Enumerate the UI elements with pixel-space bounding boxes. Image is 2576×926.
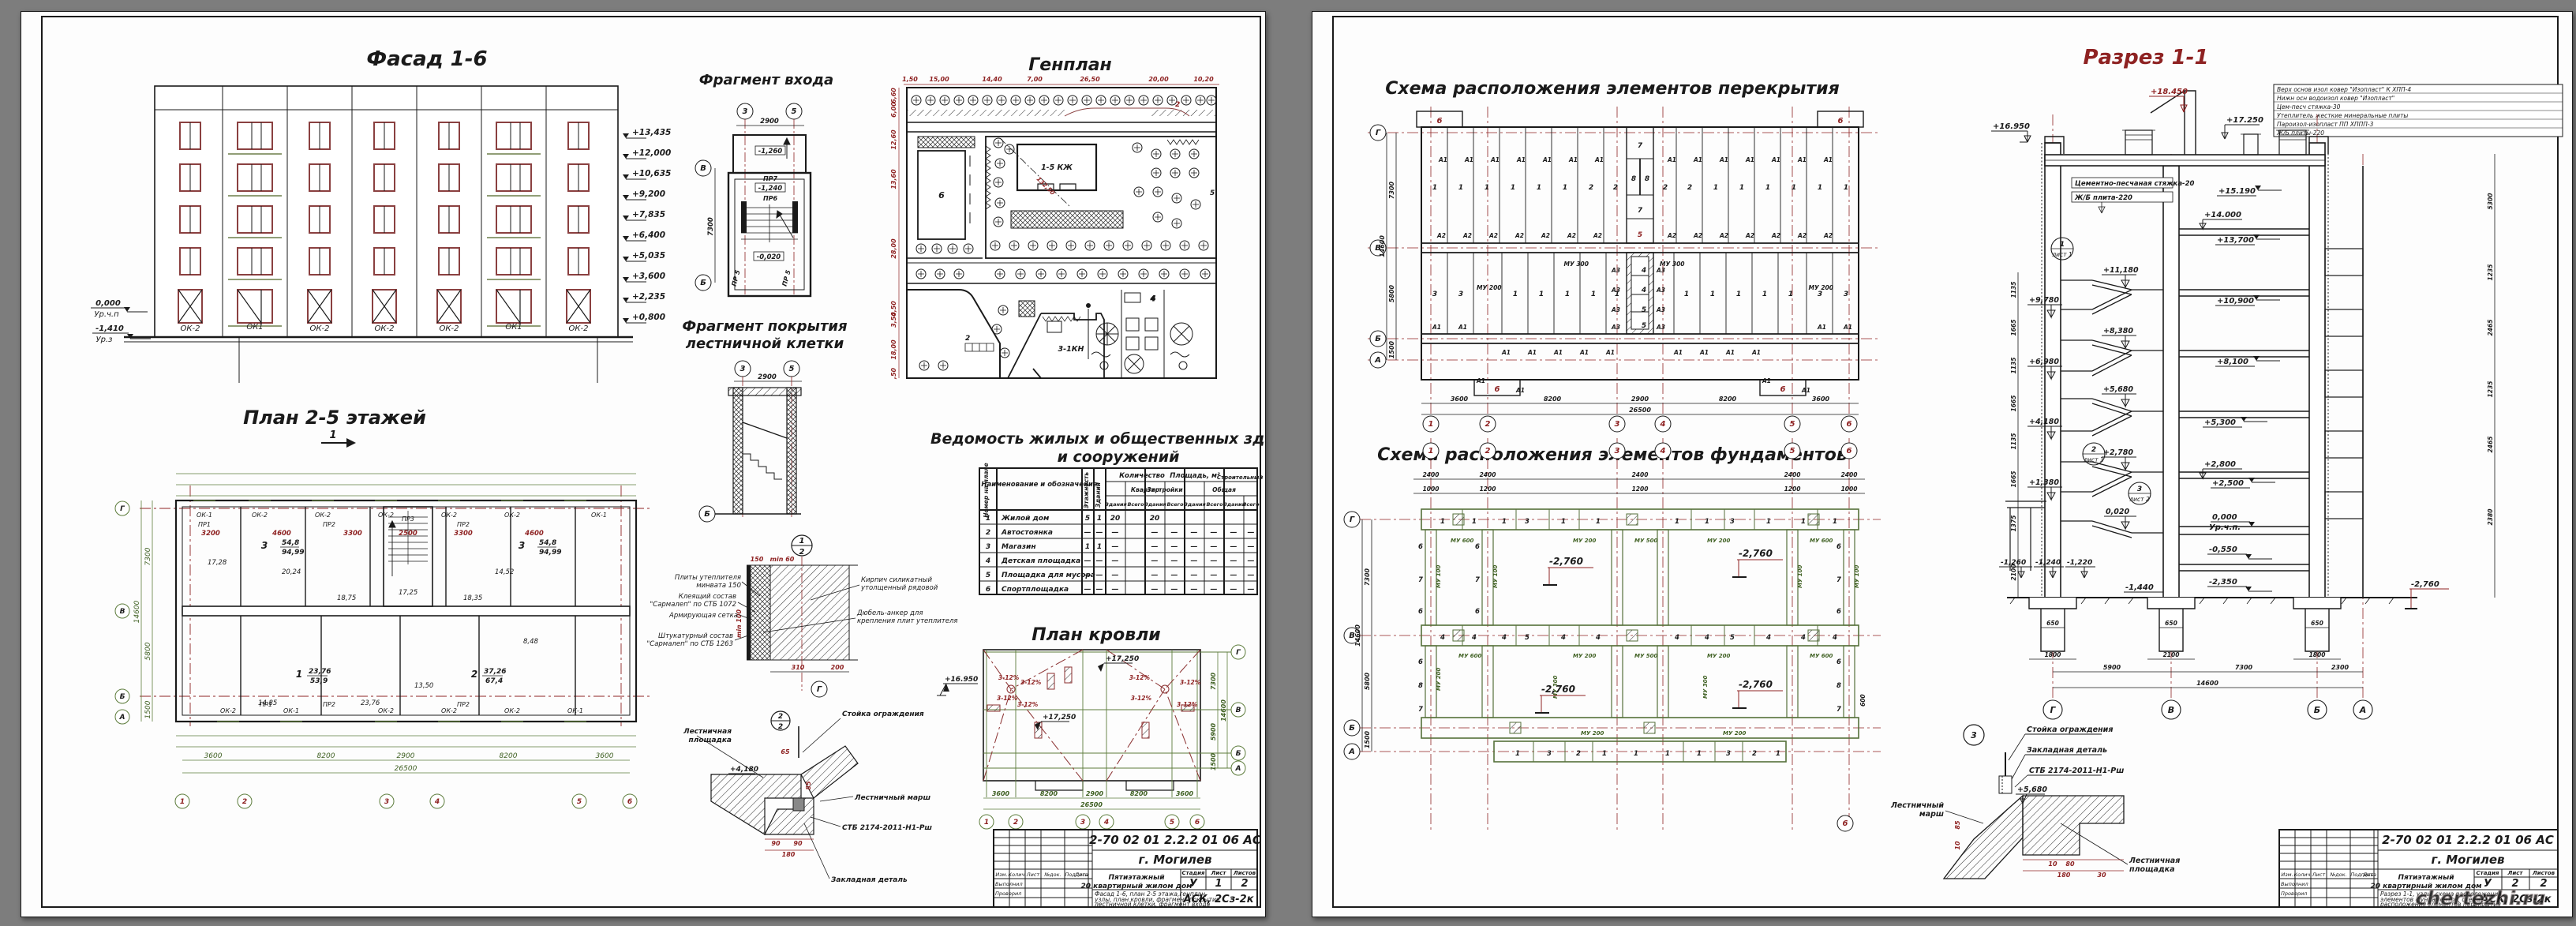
svg-text:-1,240: -1,240 [758, 185, 782, 193]
svg-text:+5,680: +5,680 [2103, 385, 2133, 394]
svg-text:Изм.: Изм. [995, 872, 1007, 878]
svg-text:13,50: 13,50 [414, 682, 433, 690]
svg-text:—: — [1211, 529, 1218, 537]
svg-text:14600: 14600 [1220, 699, 1227, 722]
svg-text:0,020: 0,020 [2106, 508, 2129, 516]
svg-text:5900: 5900 [1210, 722, 1217, 740]
svg-text:2: 2 [1576, 750, 1581, 758]
buildings-register-table: Ведомость жилых и общественных зданий и … [930, 430, 1265, 594]
svg-text:—: — [1084, 572, 1091, 579]
svg-text:ПР1: ПР1 [198, 521, 211, 528]
svg-text:2380: 2380 [2487, 509, 2494, 526]
svg-text:5: 5 [1730, 634, 1735, 642]
svg-text:+14.000: +14.000 [2204, 211, 2241, 219]
svg-text:5: 5 [1525, 634, 1529, 642]
svg-text:—: — [1248, 543, 1255, 551]
svg-text:1500: 1500 [1388, 340, 1395, 358]
svg-text:+15.190: +15.190 [2218, 187, 2256, 196]
svg-text:Здания: Здания [1184, 501, 1205, 508]
stair-roof-dim: 2900 [758, 373, 777, 381]
svg-text:4: 4 [1674, 634, 1679, 642]
svg-text:А1: А1 [1542, 156, 1552, 163]
svg-text:МУ 200: МУ 200 [1707, 653, 1731, 659]
svg-text:20: 20 [1150, 515, 1160, 523]
svg-text:7: 7 [1418, 706, 1423, 714]
svg-text:А1: А1 [1801, 387, 1810, 394]
svg-text:—: — [1230, 557, 1237, 565]
svg-text:2400: 2400 [1841, 471, 1858, 478]
svg-text:5800: 5800 [144, 642, 152, 660]
svg-text:1: 1 [1739, 184, 1744, 192]
svg-text:А2: А2 [1488, 232, 1498, 239]
svg-text:1: 1 [1684, 291, 1689, 298]
genplan-road-label: 2 [1175, 101, 1180, 109]
svg-text:65: 65 [781, 748, 790, 755]
svg-text:18,75: 18,75 [337, 594, 356, 602]
svg-text:8200: 8200 [500, 752, 518, 760]
svg-text:—: — [1211, 572, 1218, 579]
svg-text:+11,180: +11,180 [2103, 266, 2139, 275]
svg-text:1: 1 [986, 515, 990, 523]
svg-text:2900: 2900 [397, 752, 415, 760]
floor-plan: План 2-5 этажей 1 [115, 407, 653, 808]
svg-text:Количество: Количество [1119, 472, 1165, 480]
facade-title: Фасад 1-6 [366, 47, 487, 71]
svg-text:10,20: 10,20 [1193, 76, 1214, 83]
svg-text:+5,680: +5,680 [2017, 785, 2047, 794]
svg-text:А1: А1 [1438, 156, 1447, 163]
svg-text:6: 6 [1847, 447, 1852, 456]
svg-text:10: 10 [1954, 841, 1961, 850]
svg-text:Г: Г [2050, 705, 2056, 715]
svg-text:1: 1 [1765, 184, 1770, 192]
svg-text:26500: 26500 [395, 765, 417, 773]
section-left-chain: 1135 1665 1135 1665 1135 1665 1375 2100 [2010, 272, 2018, 598]
svg-text:4600: 4600 [271, 530, 291, 538]
svg-text:7: 7 [1638, 142, 1643, 150]
svg-text:МУ 200: МУ 200 [1573, 538, 1597, 544]
svg-text:6: 6 [1843, 819, 1848, 828]
svg-text:Зданий: Зданий [1095, 482, 1102, 508]
svg-text:Б: Б [120, 693, 125, 701]
svg-text:ОК-2: ОК-2 [441, 512, 457, 519]
svg-text:14600: 14600 [2196, 680, 2218, 687]
svg-text:1: 1 [1596, 518, 1601, 526]
svg-text:ОК-2: ОК-2 [252, 512, 268, 519]
svg-text:1,50: 1,50 [902, 76, 918, 83]
svg-text:6: 6 [1837, 608, 1841, 616]
svg-text:Стойка ограждения: Стойка ограждения [842, 710, 924, 718]
svg-text:7300: 7300 [2235, 664, 2253, 671]
svg-text:МУ 200: МУ 200 [1808, 284, 1833, 291]
svg-text:-1,240: -1,240 [2035, 559, 2061, 567]
svg-text:2: 2 [1485, 420, 1491, 429]
entrance-dim-v: 7300 [707, 217, 715, 236]
facade-window-label: ОК1 [505, 323, 522, 332]
svg-text:МУ 100: МУ 100 [1436, 564, 1442, 588]
svg-text:2900: 2900 [1631, 396, 1649, 403]
svg-text:Листов: Листов [2532, 870, 2555, 876]
svg-text:А1: А1 [1594, 156, 1604, 163]
svg-text:6: 6 [1475, 608, 1480, 616]
section-1-1: Разрез 1-1 Верх основ изол ковер "Изопла… [1991, 46, 2563, 719]
svg-text:1: 1 [1097, 543, 1102, 551]
svg-text:4: 4 [1832, 634, 1837, 642]
svg-text:94,99: 94,99 [282, 549, 304, 557]
svg-text:А3: А3 [1656, 306, 1665, 313]
svg-text:-2,760: -2,760 [2411, 580, 2439, 589]
svg-text:2: 2 [1687, 184, 1692, 192]
svg-text:А: А [2359, 705, 2367, 715]
svg-text:4600: 4600 [524, 530, 544, 538]
svg-text:1: 1 [329, 429, 336, 441]
facade-drawing: Фасад 1-6 ОК-2 ОК1 ОК-2 ОК-2 ОК-2 ОК1 ОК… [91, 47, 671, 383]
svg-text:7300: 7300 [1364, 568, 1371, 586]
svg-text:+17.250: +17.250 [2226, 116, 2263, 125]
svg-text:-2,350: -2,350 [2209, 578, 2237, 587]
wall-node-labels-right: Кирпич силикатныйутолщенный рядовой Дюбе… [856, 576, 958, 625]
svg-text:+1,380: +1,380 [2029, 478, 2059, 487]
svg-text:4: 4 [1150, 295, 1155, 303]
svg-text:4: 4 [1501, 634, 1507, 642]
svg-text:лист 1: лист 1 [2051, 251, 2072, 258]
svg-text:—: — [1191, 557, 1198, 565]
svg-text:Б: Б [700, 279, 706, 287]
svg-text:—: — [1230, 572, 1237, 579]
genplan-left-dims: 6,60 6,00 12,60 13,60 28,00 4,50 3,50 18… [890, 88, 897, 380]
svg-text:3-12%: 3-12% [1020, 679, 1042, 686]
svg-text:Колич.: Колич. [2294, 872, 2312, 878]
svg-text:6: 6 [1437, 117, 1443, 126]
slab-bottom-dims: 36008200 29008200 3600 26500 [1421, 396, 1859, 414]
sheet-value: 1 [1215, 878, 1222, 890]
svg-text:3600: 3600 [1812, 396, 1830, 403]
svg-text:6: 6 [1837, 543, 1841, 551]
stair-roof-fragment: Фрагмент покрытия лестничной клетки 35Б … [682, 318, 848, 522]
svg-text:А: А [119, 714, 125, 722]
svg-text:—: — [1248, 529, 1255, 537]
section-stair-marks: +11,180 +9,780 +8,380 +6,980 +5,680 +4,1… [2027, 266, 2139, 529]
svg-text:А: А [1235, 765, 1241, 773]
svg-text:ПР 5: ПР 5 [781, 269, 792, 287]
svg-text:1: 1 [1085, 543, 1090, 551]
svg-text:площадка: площадка [2129, 865, 2175, 874]
svg-text:А1: А1 [1476, 377, 1485, 384]
svg-text:-2,760: -2,760 [1541, 684, 1575, 695]
svg-text:6: 6 [1418, 543, 1423, 551]
genplan-building-6: 6 [938, 190, 945, 201]
svg-text:+8,380: +8,380 [2103, 327, 2133, 336]
genplan: Генплан 1,5015,00 14,407,00 26,5020,00 1… [890, 55, 1219, 380]
svg-text:А1: А1 [1817, 324, 1826, 331]
svg-text:3600: 3600 [992, 790, 1010, 797]
svg-text:3: 3 [1615, 447, 1620, 456]
svg-text:8: 8 [1837, 682, 1841, 690]
entrance-fragment: Фрагмент входа 35 ВБ 2900 7300 -1,260 ПР… [695, 72, 833, 296]
svg-text:1000: 1000 [1841, 485, 1858, 493]
svg-text:1: 1 [1440, 518, 1445, 526]
svg-text:5: 5 [1642, 306, 1646, 314]
title-block: Изм.Колич. Лист№док. ПодписьДата Выполни… [994, 830, 1261, 908]
svg-text:Листов: Листов [1233, 870, 1256, 876]
svg-text:Нижн осн водоизол ковер "Изопл: Нижн осн водоизол ковер "Изопласт" [2277, 95, 2394, 102]
svg-text:Застройки: Застройки [1147, 486, 1183, 493]
svg-text:+17,250: +17,250 [1106, 655, 1139, 663]
svg-text:1500: 1500 [1210, 752, 1217, 770]
svg-text:МУ 600: МУ 600 [1810, 538, 1833, 544]
svg-text:2400: 2400 [1423, 471, 1440, 478]
svg-text:1: 1 [1705, 518, 1709, 526]
svg-text:1800: 1800 [2045, 651, 2061, 658]
svg-text:МУ 200: МУ 200 [1707, 538, 1731, 544]
section-bottom-dims: 5900 7300 2300 14600 [2053, 664, 2363, 688]
svg-text:+9,780: +9,780 [2029, 296, 2059, 305]
svg-text:1: 1 [1428, 420, 1434, 429]
svg-text:Дата: Дата [1074, 872, 1088, 878]
svg-text:—: — [1171, 586, 1178, 594]
svg-text:+10,635: +10,635 [632, 169, 671, 178]
svg-text:А1: А1 [1553, 349, 1563, 356]
svg-text:Стадия: Стадия [2477, 870, 2499, 876]
svg-text:—: — [1096, 529, 1103, 537]
svg-text:Стадия: Стадия [1182, 870, 1205, 876]
svg-text:МУ 100: МУ 100 [1854, 564, 1860, 588]
svg-text:МУ 500: МУ 500 [1634, 653, 1658, 659]
svg-text:Магазин: Магазин [1002, 543, 1036, 551]
svg-text:1: 1 [984, 819, 989, 827]
svg-text:2: 2 [1485, 447, 1491, 456]
svg-text:3: 3 [740, 365, 746, 373]
svg-text:5300: 5300 [2487, 193, 2494, 210]
svg-text:Ур.ч.п.: Ур.ч.п. [2209, 523, 2241, 532]
svg-text:10: 10 [2048, 860, 2057, 868]
svg-text:—: — [1151, 543, 1159, 551]
table-title-2: и сооружений [1058, 448, 1180, 466]
svg-text:+6,400: +6,400 [632, 231, 665, 240]
object-name-2: 20 квартирный жилом дом [1080, 883, 1193, 890]
svg-text:1: 1 [296, 669, 302, 680]
svg-text:А1: А1 [1699, 349, 1709, 356]
svg-text:+8,100: +8,100 [2217, 358, 2248, 366]
svg-text:МУ 600: МУ 600 [1458, 653, 1482, 659]
svg-text:8: 8 [1418, 682, 1423, 690]
svg-text:200: 200 [831, 664, 844, 671]
svg-text:3: 3 [1432, 291, 1437, 298]
svg-text:1: 1 [1432, 184, 1437, 192]
svg-text:1: 1 [1485, 184, 1489, 192]
svg-text:А1: А1 [1579, 349, 1589, 356]
svg-text:Закладная деталь: Закладная деталь [831, 876, 908, 884]
svg-text:20,00: 20,00 [1148, 76, 1169, 83]
svg-text:А3: А3 [1611, 287, 1620, 294]
svg-text:В: В [120, 608, 125, 616]
svg-text:ОК-1: ОК-1 [197, 512, 212, 519]
svg-text:6,60: 6,60 [890, 88, 897, 103]
svg-text:А1: А1 [1843, 324, 1852, 331]
svg-text:Закладная деталь: Закладная деталь [2027, 746, 2107, 755]
svg-text:7: 7 [1475, 576, 1480, 584]
svg-text:В: В [2168, 705, 2174, 715]
svg-text:6: 6 [1837, 658, 1841, 666]
table-rows: 1Жилой дом512020 2Автостоянка————————— 3… [985, 515, 1255, 594]
svg-text:"Сармалеп" по СТБ 1072: "Сармалеп" по СТБ 1072 [650, 601, 736, 609]
doc-number: 2-70 02 01 2.2.2 01 06 АС [1089, 833, 1261, 847]
svg-text:94,99: 94,99 [539, 549, 561, 557]
svg-text:Цем-песч стяжка-30: Цем-песч стяжка-30 [2277, 103, 2341, 111]
svg-text:Лестничный: Лестничный [1890, 801, 1944, 810]
svg-text:А1: А1 [1673, 349, 1683, 356]
svg-text:-2,760: -2,760 [1739, 548, 1773, 559]
svg-text:ОК-2: ОК-2 [315, 512, 331, 519]
genplan-building-1-5: 1-5 КЖ [1041, 163, 1073, 172]
svg-text:А2: А2 [1567, 232, 1576, 239]
svg-text:1: 1 [1776, 750, 1780, 758]
svg-text:А1: А1 [1823, 156, 1833, 163]
svg-text:4: 4 [1595, 634, 1601, 642]
svg-text:3-12%: 3-12% [1129, 674, 1151, 681]
svg-text:—: — [1096, 586, 1103, 594]
svg-text:1500: 1500 [1364, 730, 1371, 748]
svg-text:1: 1 [1833, 518, 1837, 526]
svg-text:14600: 14600 [1379, 235, 1386, 257]
svg-text:ПР2: ПР2 [457, 521, 470, 528]
wall-node-detail: 1 2 150 min 60 min 100 310 200 Г Плиты у… [646, 535, 957, 697]
svg-text:1235: 1235 [2487, 264, 2494, 281]
svg-text:А3: А3 [1611, 324, 1620, 331]
svg-text:3: 3 [261, 540, 268, 551]
svg-text:Утеплитель жесткие минеральные: Утеплитель жесткие минеральные плиты [2277, 112, 2408, 119]
svg-text:3: 3 [1080, 819, 1085, 827]
stage-value: У [1189, 878, 1198, 890]
svg-text:А2: А2 [1593, 232, 1602, 239]
svg-text:МУ 200: МУ 200 [1573, 653, 1597, 659]
svg-text:5: 5 [1790, 447, 1795, 456]
genplan-top-dims: 1,5015,00 14,407,00 26,5020,00 10,20 [902, 76, 1214, 83]
svg-text:А1: А1 [1501, 349, 1511, 356]
svg-text:1: 1 [1537, 184, 1541, 192]
svg-text:3-12%: 3-12% [1131, 695, 1152, 702]
svg-text:2100: 2100 [2010, 564, 2017, 581]
svg-text:54,8: 54,8 [539, 539, 556, 547]
svg-text:7: 7 [1837, 576, 1841, 584]
svg-text:Лестничная: Лестничная [2129, 857, 2180, 865]
svg-text:650: 650 [2046, 620, 2059, 627]
svg-text:5: 5 [1170, 819, 1174, 827]
svg-text:1200: 1200 [1632, 485, 1649, 493]
svg-text:Площадь, м²: Площадь, м² [1170, 472, 1220, 480]
svg-text:—: — [1151, 529, 1159, 537]
svg-text:+6,980: +6,980 [2029, 358, 2059, 366]
svg-text:А2: А2 [1745, 232, 1754, 239]
svg-text:МУ 500: МУ 500 [1634, 538, 1658, 544]
svg-text:3: 3 [743, 107, 748, 116]
svg-text:1: 1 [1428, 447, 1434, 456]
svg-text:+5,300: +5,300 [2204, 418, 2236, 427]
svg-text:Б: Б [704, 510, 710, 519]
svg-text:6: 6 [986, 586, 990, 594]
svg-text:—: — [1171, 529, 1178, 537]
svg-text:Всего: Всего [1127, 501, 1144, 508]
svg-text:1: 1 [1792, 184, 1796, 192]
svg-text:26500: 26500 [1629, 407, 1651, 414]
svg-text:+4,180: +4,180 [730, 766, 758, 774]
svg-text:1: 1 [1565, 291, 1570, 298]
roof-elevations: +17,250 +17,250 +16.950 [937, 655, 1139, 730]
svg-text:1: 1 [1801, 518, 1806, 526]
node3-badge: 3 [1971, 730, 1977, 740]
svg-text:А3: А3 [1656, 267, 1665, 274]
svg-text:Здания: Здания [1105, 501, 1126, 508]
svg-text:1: 1 [1675, 518, 1679, 526]
svg-text:85: 85 [1954, 820, 1961, 830]
svg-text:6: 6 [1495, 385, 1500, 394]
wall-node-axis: Г [817, 685, 822, 694]
svg-text:2900: 2900 [1086, 790, 1104, 797]
svg-text:14,40: 14,40 [982, 76, 1002, 83]
svg-text:—: — [1230, 543, 1237, 551]
svg-text:А3: А3 [1656, 324, 1665, 331]
svg-text:650: 650 [2165, 620, 2177, 627]
svg-text:2400: 2400 [1784, 471, 1801, 478]
svg-text:А1: А1 [1751, 349, 1761, 356]
svg-text:Армирующая сетка: Армирующая сетка [668, 612, 738, 620]
svg-text:5: 5 [1638, 231, 1642, 239]
svg-text:—: — [1211, 586, 1218, 594]
svg-text:4: 4 [1800, 634, 1806, 642]
svg-text:Б: Б [2314, 705, 2320, 715]
svg-text:3200: 3200 [201, 530, 220, 538]
svg-text:СТБ 2174-2011-Н1-Рш: СТБ 2174-2011-Н1-Рш [2029, 767, 2124, 775]
stair-node-badge-bottom: 2 [778, 723, 783, 731]
svg-text:85: 85 [805, 781, 812, 790]
svg-text:14600: 14600 [133, 600, 141, 623]
section-footing-dims: 650 1800 650 2100 650 1800 [2029, 620, 2341, 659]
svg-text:1: 1 [1513, 291, 1518, 298]
svg-text:3: 3 [1726, 750, 1731, 758]
svg-text:ОК-2: ОК-2 [504, 512, 520, 519]
svg-text:МУ 600: МУ 600 [1810, 653, 1833, 659]
node-badge-top: 1 [799, 537, 805, 545]
svg-text:0,000: 0,000 [2212, 513, 2237, 522]
svg-text:Г: Г [1376, 129, 1381, 137]
svg-text:Общая: Общая [1212, 486, 1236, 493]
svg-text:А2: А2 [1462, 232, 1472, 239]
svg-text:6: 6 [1838, 117, 1844, 126]
svg-text:20,24: 20,24 [282, 568, 301, 576]
facade-window-label: ОК-2 [440, 324, 459, 333]
svg-text:В: В [1236, 707, 1241, 714]
svg-text:—: — [1211, 557, 1218, 565]
svg-text:min 60: min 60 [770, 556, 795, 563]
slab-left-dims: 7300 5800 1500 14600 [1379, 133, 1396, 360]
svg-text:Г: Г [1350, 515, 1355, 524]
svg-text:1: 1 [1561, 518, 1566, 526]
city-right: г. Могилев [2432, 853, 2505, 867]
svg-text:—: — [1230, 529, 1237, 537]
svg-text:Здания: Здания [1144, 501, 1166, 508]
svg-text:А1: А1 [1725, 349, 1735, 356]
org-name: АСК, 2Сз-2к [1182, 894, 1254, 905]
svg-text:площадка: площадка [689, 737, 732, 744]
svg-text:+13,435: +13,435 [632, 128, 671, 137]
svg-text:7300: 7300 [1388, 181, 1395, 199]
svg-text:В: В [700, 164, 706, 173]
svg-text:Этажность: Этажность [1083, 472, 1090, 509]
svg-text:лист 2: лист 2 [2129, 496, 2150, 503]
svg-text:Спортплощадка: Спортплощадка [1002, 586, 1069, 594]
svg-text:3-12%: 3-12% [998, 674, 1020, 681]
svg-text:1135: 1135 [2010, 358, 2017, 374]
